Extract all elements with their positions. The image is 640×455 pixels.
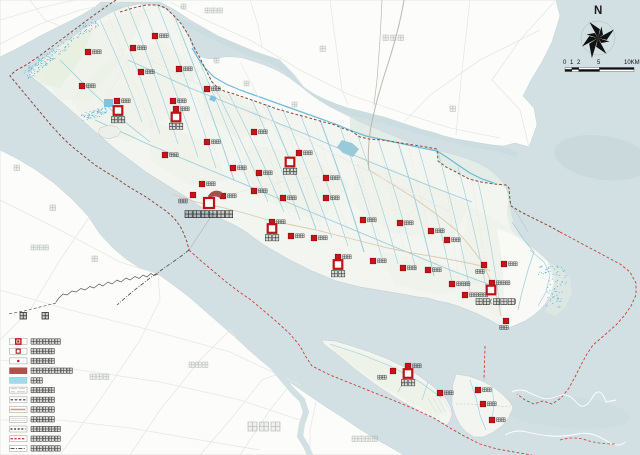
svg-text:N: N xyxy=(594,5,602,17)
svg-text:10KM: 10KM xyxy=(624,60,640,66)
